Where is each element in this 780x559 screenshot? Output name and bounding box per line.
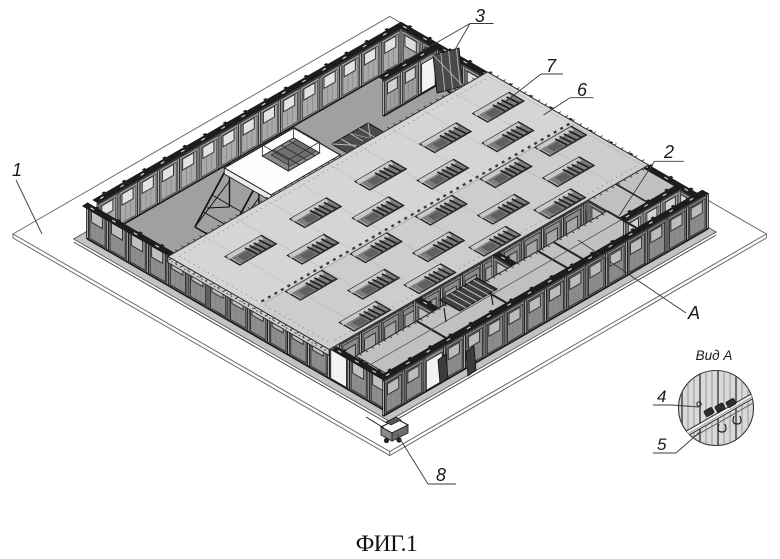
svg-text:A: A bbox=[687, 303, 700, 323]
svg-text:5: 5 bbox=[657, 435, 667, 454]
svg-text:2: 2 bbox=[663, 142, 674, 162]
svg-text:1: 1 bbox=[12, 160, 22, 180]
svg-text:ФИГ.1: ФИГ.1 bbox=[356, 531, 418, 557]
svg-text:4: 4 bbox=[657, 387, 666, 406]
svg-text:8: 8 bbox=[436, 465, 446, 485]
svg-text:Вид А: Вид А bbox=[696, 348, 733, 363]
svg-text:3: 3 bbox=[475, 6, 485, 26]
svg-text:6: 6 bbox=[577, 80, 588, 100]
svg-text:7: 7 bbox=[546, 56, 557, 76]
